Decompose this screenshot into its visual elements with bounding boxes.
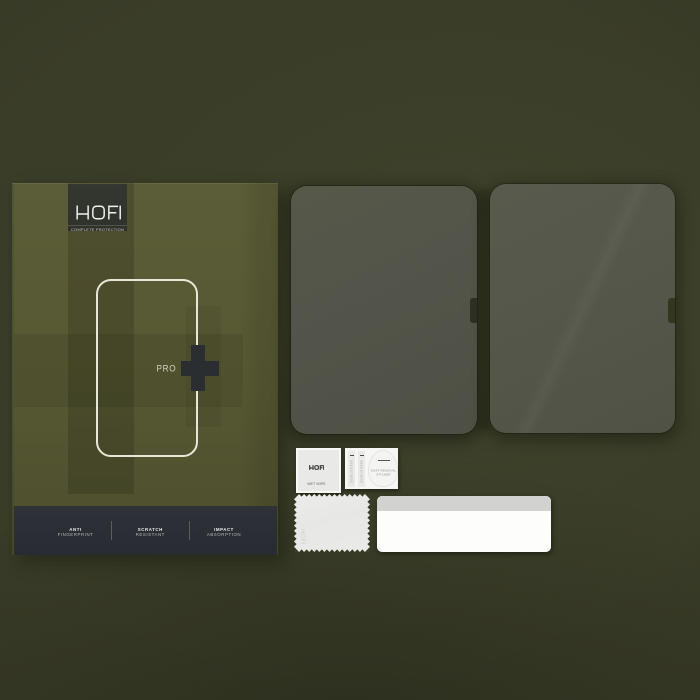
svg-text:WET WIPE: WET WIPE [307,482,326,486]
svg-text:ABSORPTION: ABSORPTION [207,532,241,537]
svg-text:GUIDE STICKER: GUIDE STICKER [350,460,354,483]
svg-text:PRO: PRO [157,363,177,374]
svg-text:RESISTANT: RESISTANT [136,532,165,537]
svg-text:STICKER: STICKER [376,473,391,477]
svg-text:COMPLETE PROTECTION: COMPLETE PROTECTION [71,227,124,232]
svg-text:GUIDE STICKER: GUIDE STICKER [360,460,364,483]
svg-text:FINGERPRINT: FINGERPRINT [58,532,94,537]
svg-text:HOFI: HOFI [299,529,305,545]
